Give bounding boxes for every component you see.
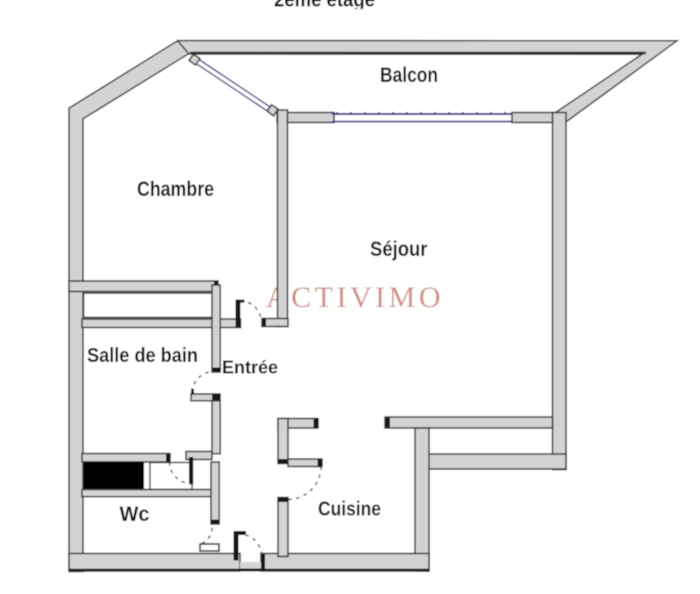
svg-text:Cuisine: Cuisine xyxy=(318,498,381,521)
svg-text:Wc: Wc xyxy=(120,503,150,526)
svg-text:ACTIVIMO: ACTIVIMO xyxy=(266,281,444,314)
svg-text:Balcon: Balcon xyxy=(380,64,438,87)
svg-text:Chambre: Chambre xyxy=(137,178,214,201)
svg-text:Salle de bain: Salle de bain xyxy=(87,345,198,367)
svg-text:Entrée: Entrée xyxy=(222,357,278,378)
svg-text:Séjour: Séjour xyxy=(370,238,428,261)
